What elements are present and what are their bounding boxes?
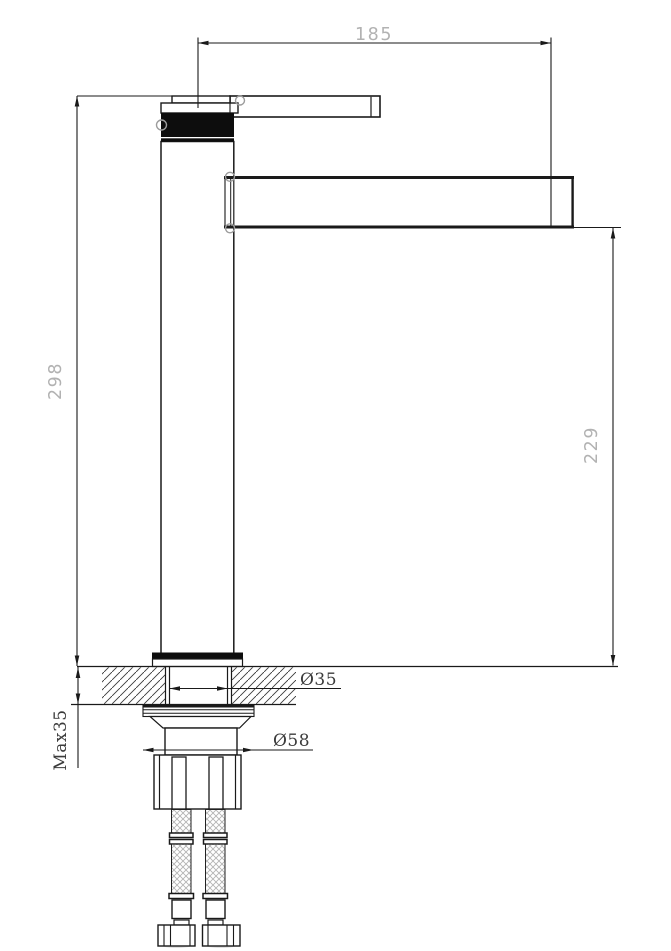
countertop-section: [71, 667, 618, 705]
supply-hoses: [158, 810, 240, 949]
dim-counter-thickness: Max35: [51, 667, 103, 771]
dim-label-spout-height: 229: [582, 426, 602, 464]
body-column: [161, 142, 234, 654]
countertop-hatch-right: [232, 667, 297, 704]
mounting-nut-ribs: [154, 755, 241, 809]
dim-spout-height: 229: [573, 228, 621, 666]
dim-label-spout-reach: 185: [355, 25, 393, 45]
mounting-assembly: [143, 706, 254, 810]
drawing-canvas: 185 298 229 Max35 Ø35 Ø58: [0, 0, 671, 951]
faucet-side-view: [152, 96, 574, 667]
mounting-washer: [143, 706, 254, 717]
dim-label-nut-diameter: Ø58: [273, 731, 310, 751]
dim-label-shank-diameter: Ø35: [300, 670, 337, 690]
threaded-shank: [166, 667, 232, 704]
dim-label-total-height: 298: [46, 362, 66, 400]
handle-lever: [230, 96, 380, 117]
faucet-technical-drawing: 185 298 229 Max35 Ø35 Ø58: [0, 0, 671, 951]
spout: [224, 176, 574, 228]
handle-head: [161, 96, 238, 142]
handle-collar: [161, 113, 234, 137]
handle-top-cap: [172, 96, 230, 103]
handle-band: [161, 138, 234, 141]
base-flange: [152, 653, 243, 667]
supply-hose-right: [203, 810, 241, 949]
nut-taper: [150, 717, 251, 729]
supply-hose-left: [158, 810, 195, 949]
countertop-hatch-left: [102, 667, 166, 704]
mounting-nut-body: [165, 728, 237, 755]
dim-label-counter-thickness: Max35: [51, 709, 71, 770]
handle-cap: [161, 103, 238, 113]
